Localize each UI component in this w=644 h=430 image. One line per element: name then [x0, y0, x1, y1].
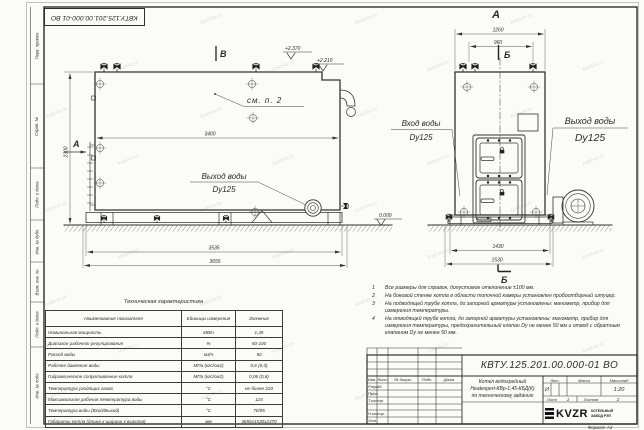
tb-lit-value: И [543, 383, 551, 396]
note-item: 2На боковой стенке котла в области топоч… [372, 293, 634, 300]
notes-list: 1Все размеры для справок, допустимое отк… [372, 285, 634, 338]
tech-table-header-row: Наименование показателя Единицы измерени… [46, 311, 283, 327]
technical-characteristics-table: Техническая характеристика Наименование … [45, 299, 282, 428]
margin-label-inv-podl: Инв. № подл. [30, 347, 44, 424]
tb-role-utv: Утв. [368, 418, 400, 424]
note-item: 1Все размеры для справок, допустимое отк… [372, 285, 634, 292]
tech-row: Номинальная мощностьМВт1,45 [46, 327, 283, 338]
tb-role-razrab: Разраб. [368, 384, 400, 390]
company-logo: KVZR КОТЕЛЬНЫЙ ЗАВОД РЭП [545, 404, 635, 423]
tb-role-prov: Пров. [368, 391, 400, 397]
tech-row: Рабочее давление водыМПа (кгс/см2)0,6 (6… [46, 360, 283, 371]
drawing-sheet: kotel-kv.rukotel-kv.rukotel-kv.rukotel-k… [0, 0, 644, 430]
tb-scale-value: 1:20 [601, 383, 637, 396]
tb-role-nkontr: Н.контр. [368, 411, 400, 417]
top-doc-number-box: КВТУ.125.201.00.000-01 ВО [44, 8, 145, 26]
tech-row: Габариты котла (длина х ширина х высота)… [46, 416, 283, 427]
tb-col-list: Лист [377, 377, 388, 384]
margin-label-podp-data-2: Подп. и дата [30, 302, 44, 347]
tech-table-title: Техническая характеристика [45, 299, 282, 310]
tech-row: Максимальная рабочая температура воды°С1… [46, 394, 283, 405]
tech-row: Расход водым3/ч50 [46, 349, 283, 360]
tb-sheets-total: 2 [608, 396, 628, 402]
margin-label-inv-dubl: Инв. № дубл. [30, 220, 44, 262]
top-doc-number: КВТУ.125.201.00.000-01 ВО [51, 14, 138, 21]
tb-sheet-label: Лист [544, 396, 560, 402]
tech-row: Диапазон рабочего регулирования%50-100 [46, 338, 283, 349]
margin-label-sprav: Справ. № [30, 84, 44, 168]
title-block-product-name: Котел водогрейный Heatexpert-КВр-1,45-КБ… [463, 377, 542, 401]
tb-sheets-label: Листов [578, 396, 604, 402]
tech-header-name: Наименование показателя [46, 311, 182, 327]
tb-col-data: Дата [436, 377, 462, 384]
margin-label-perv-primen: Перв. примен. [30, 7, 44, 84]
logo-text: KVZR [556, 408, 588, 420]
margin-label-podp-data-1: Подп. и дата [30, 168, 44, 220]
company-name: КОТЕЛЬНЫЙ ЗАВОД РЭП [591, 409, 613, 418]
tech-row: Гидравлическое сопротивление котлаМПа (к… [46, 371, 283, 382]
tb-mass-label: Масса [567, 377, 601, 383]
tb-sheet-number: 1 [562, 396, 574, 402]
tech-row: Температура уходящих газов°Сне более 220 [46, 382, 283, 393]
tb-col-dokum: № докум. [388, 377, 418, 384]
tech-header-units: Единицы измерения [182, 311, 236, 327]
margin-label-vzam-inv: Взам. инв. № [30, 262, 44, 302]
logo-bars-icon [545, 408, 554, 419]
tech-table: Наименование показателя Единицы измерени… [45, 310, 283, 428]
tech-row: Температура воды (Вход/Выход)°С70/95 [46, 405, 283, 416]
format-label: Формат А3 [560, 424, 640, 430]
note-item: 3На подводящей трубе котла, до запорной … [372, 301, 634, 315]
tb-role-tkontr: Т.контр. [368, 398, 400, 404]
tech-header-value: Значение [236, 311, 283, 327]
note-item: 4На отводящей трубе котла, до запорной а… [372, 316, 634, 337]
tb-col-podp: Подп. [418, 377, 436, 384]
tb-col-izm: Изм. [367, 377, 377, 384]
title-block-doc-number: КВТУ.125.201.00.000-01 ВО [463, 356, 636, 375]
